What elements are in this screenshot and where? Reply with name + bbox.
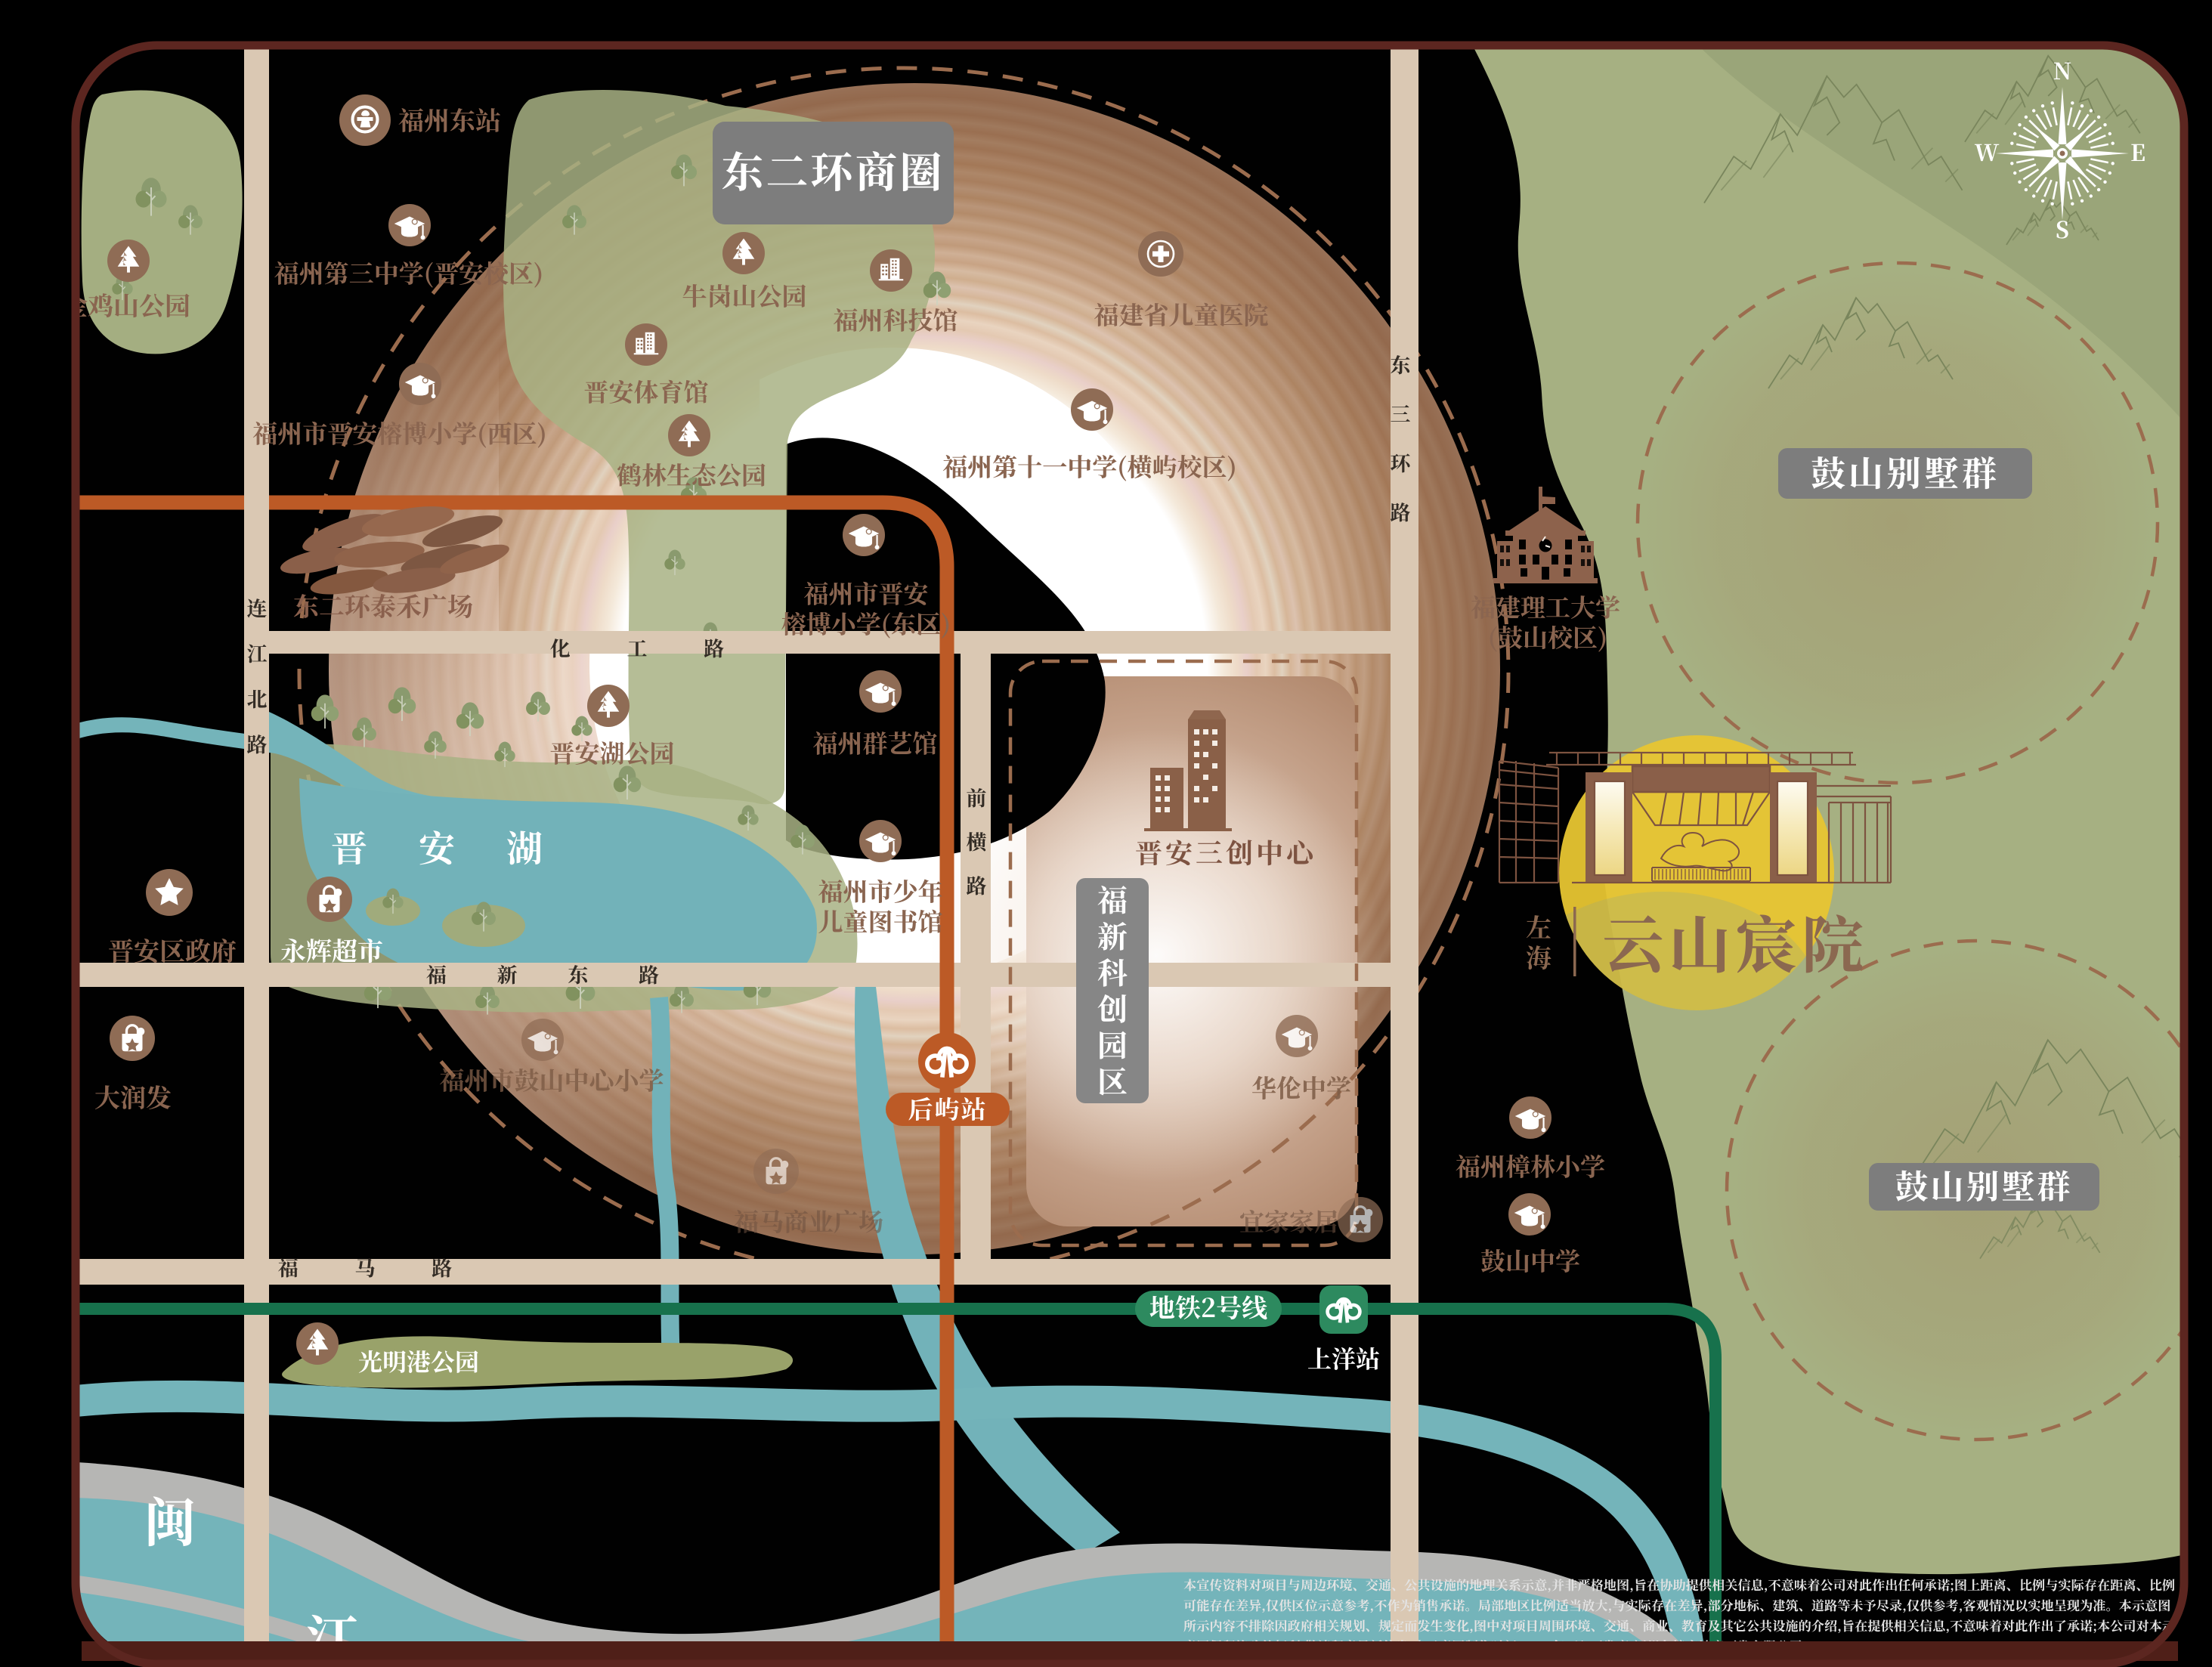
svg-text:连: 连 [247, 592, 268, 622]
svg-text:路: 路 [1391, 496, 1411, 526]
svg-text:晋安湖公园: 晋安湖公园 [550, 735, 675, 770]
svg-text:福 新 东 路: 福 新 东 路 [426, 959, 682, 988]
svg-text:后屿站: 后屿站 [908, 1090, 988, 1126]
svg-text:前: 前 [967, 782, 987, 812]
svg-text:福州第十一中学(横屿校区): 福州第十一中学(横屿校区) [942, 448, 1236, 484]
svg-text:路: 路 [967, 870, 987, 899]
svg-text:本宣传资料对项目与周边环境、交通、公共设施的地理关系示意,并: 本宣传资料对项目与周边环境、交通、公共设施的地理关系示意,并非严格地图,旨在协助… [1183, 1575, 2175, 1594]
svg-text:晋安三创中心: 晋安三创中心 [1135, 833, 1317, 871]
svg-text:东二环泰禾广场: 东二环泰禾广场 [293, 586, 473, 623]
svg-text:江: 江 [247, 638, 268, 667]
svg-text:光明港公园: 光明港公园 [358, 1344, 479, 1378]
svg-text:宜家家居: 宜家家居 [1239, 1203, 1339, 1239]
svg-text:W: W [1975, 135, 2000, 168]
svg-text:鼓山别墅群: 鼓山别墅群 [1895, 1160, 2073, 1208]
svg-text:N: N [2053, 53, 2071, 86]
svg-text:儿童图书馆: 儿童图书馆 [818, 903, 943, 939]
svg-text:上洋站: 上洋站 [1307, 1341, 1380, 1375]
svg-text:福州科技馆: 福州科技馆 [834, 302, 958, 337]
svg-text:大润发: 大润发 [94, 1078, 172, 1115]
svg-text:海: 海 [1526, 938, 1551, 975]
svg-text:东二环商圈: 东二环商圈 [722, 140, 945, 200]
svg-text:鹤林生态公园: 鹤林生态公园 [617, 456, 766, 492]
svg-text:福马商业广场: 福马商业广场 [734, 1203, 883, 1239]
svg-text:区: 区 [1097, 1059, 1128, 1102]
svg-text:路: 路 [247, 728, 268, 758]
svg-text:鼓山别墅群: 鼓山别墅群 [1811, 447, 2000, 496]
svg-text:环: 环 [1391, 447, 1412, 477]
svg-text:华伦中学: 华伦中学 [1251, 1069, 1351, 1105]
svg-text:福 马 路: 福 马 路 [278, 1252, 478, 1282]
svg-text:福州市鼓山中心小学: 福州市鼓山中心小学 [440, 1062, 664, 1097]
svg-text:闽: 闽 [144, 1481, 196, 1557]
svg-text:地铁2号线: 地铁2号线 [1149, 1288, 1267, 1325]
svg-text:横: 横 [967, 826, 988, 855]
svg-text:福建省儿童医院: 福建省儿童医院 [1094, 296, 1269, 332]
svg-text:化 工 路: 化 工 路 [550, 632, 750, 662]
svg-text:东: 东 [1391, 349, 1412, 379]
svg-text:福州市晋安榕博小学(西区): 福州市晋安榕博小学(西区) [252, 415, 546, 450]
svg-text:鼓山中学: 鼓山中学 [1480, 1242, 1580, 1278]
svg-text:三: 三 [1391, 398, 1411, 428]
svg-text:福州群艺馆: 福州群艺馆 [813, 725, 938, 760]
svg-text:永辉超市: 永辉超市 [280, 931, 383, 968]
svg-text:晋安区政府: 晋安区政府 [108, 931, 237, 968]
svg-text:晋安体育馆: 晋安体育馆 [584, 373, 709, 409]
svg-text:福州第三中学(晋安校区): 福州第三中学(晋安校区) [274, 255, 543, 290]
svg-text:榕博小学(东区): 榕博小学(东区) [781, 605, 951, 641]
svg-text:可能存在差异,仅供区位示意参考,不作为销售承诺。局部地区比例: 可能存在差异,仅供区位示意参考,不作为销售承诺。局部地区比例适当放大,与实际存在… [1183, 1595, 2170, 1614]
svg-text:金鸡山公园: 金鸡山公园 [62, 286, 190, 323]
svg-text:福州东站: 福州东站 [398, 101, 501, 138]
svg-text:S: S [2056, 212, 2069, 245]
svg-text:北: 北 [247, 683, 268, 713]
svg-text:云山宸院: 云山宸院 [1602, 897, 1868, 985]
svg-text:福州樟林小学: 福州樟林小学 [1456, 1148, 1605, 1183]
svg-text:E: E [2130, 135, 2145, 168]
svg-text:晋 安 湖: 晋 安 湖 [331, 820, 564, 872]
svg-text:牛岗山公园: 牛岗山公园 [682, 277, 807, 313]
svg-text:(鼓山校区): (鼓山校区) [1488, 619, 1607, 654]
svg-text:所示内容不排除因政府相关规划、规定而发生变化,图中对项目周围: 所示内容不排除因政府相关规划、规定而发生变化,图中对项目周围环境、交通、商业、教… [1183, 1616, 2176, 1635]
